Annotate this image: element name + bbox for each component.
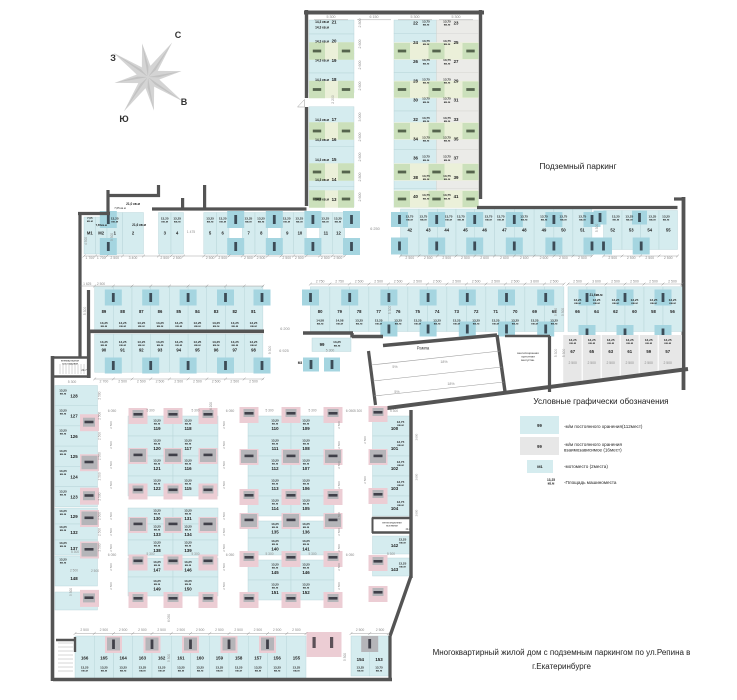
svg-text:28: 28	[413, 78, 418, 83]
svg-text:С: С	[175, 30, 182, 40]
svg-text:кв.м: кв.м	[272, 586, 279, 590]
svg-text:111: 111	[272, 446, 279, 451]
svg-text:кв.м: кв.м	[397, 463, 404, 467]
svg-text:74: 74	[435, 309, 440, 314]
svg-text:2 500: 2 500	[98, 472, 102, 480]
svg-text:2 500: 2 500	[222, 512, 226, 520]
svg-text:кв.м: кв.м	[423, 61, 430, 65]
svg-text:2 500: 2 500	[196, 628, 205, 632]
svg-text:76: 76	[396, 309, 401, 314]
svg-text:18%: 18%	[440, 360, 448, 364]
svg-text:2К-7: 2К-7	[81, 368, 87, 372]
svg-text:2 500: 2 500	[608, 256, 617, 260]
svg-text:5 300: 5 300	[554, 308, 558, 316]
svg-text:1 700: 1 700	[97, 256, 106, 260]
svg-text:кв.м: кв.м	[250, 324, 257, 328]
svg-text:кв.м: кв.м	[569, 341, 576, 345]
svg-text:156: 156	[273, 656, 281, 661]
svg-text:164: 164	[119, 656, 127, 661]
svg-text:1 475: 1 475	[187, 230, 195, 234]
svg-text:кв.м: кв.м	[420, 218, 427, 222]
svg-text:кв.м: кв.м	[250, 343, 257, 347]
svg-text:159: 159	[216, 656, 224, 661]
svg-text:М1: М1	[87, 231, 93, 236]
svg-text:130: 130	[153, 516, 161, 521]
svg-text:59: 59	[646, 349, 651, 354]
svg-text:кв.м: кв.м	[395, 322, 402, 326]
svg-text:кв.м: кв.м	[406, 218, 413, 222]
svg-text:2 500: 2 500	[218, 256, 227, 260]
svg-text:5 300: 5 300	[266, 409, 274, 413]
svg-text:кв.м: кв.м	[272, 442, 279, 446]
svg-text:5 300: 5 300	[326, 349, 335, 353]
svg-text:кв.м: кв.м	[245, 220, 252, 224]
svg-text:71: 71	[493, 309, 498, 314]
svg-text:2 500: 2 500	[119, 628, 128, 632]
svg-text:2 500: 2 500	[118, 379, 127, 383]
svg-text:кв.м: кв.м	[397, 443, 404, 447]
svg-text:кв.м: кв.м	[154, 442, 161, 446]
svg-text:123: 123	[70, 495, 78, 500]
svg-text:кв.м: кв.м	[194, 324, 201, 328]
svg-text:2 500: 2 500	[230, 379, 239, 383]
svg-text:5 300: 5 300	[147, 409, 155, 413]
svg-text:2 500: 2 500	[177, 628, 186, 632]
svg-text:142: 142	[391, 543, 399, 548]
svg-text:83: 83	[214, 309, 219, 314]
svg-text:153: 153	[375, 657, 383, 662]
svg-text:кв.м: кв.м	[185, 563, 192, 567]
svg-text:кв.м: кв.м	[274, 669, 281, 673]
svg-text:2 500: 2 500	[109, 528, 113, 536]
svg-text:кв.м: кв.м	[423, 81, 430, 85]
svg-text:80: 80	[318, 309, 323, 314]
svg-text:116: 116	[184, 466, 192, 471]
svg-text:кв.м: кв.м	[607, 341, 614, 345]
svg-text:2 500: 2 500	[234, 628, 243, 632]
svg-text:кв.м: кв.м	[154, 462, 161, 466]
svg-text:кв.м: кв.м	[120, 669, 127, 673]
svg-text:165: 165	[100, 656, 108, 661]
svg-text:2 600: 2 600	[500, 256, 509, 260]
svg-text:2 500: 2 500	[109, 544, 113, 552]
svg-text:14,3 кв.м: 14,3 кв.м	[315, 78, 330, 82]
svg-text:127: 127	[70, 414, 78, 419]
svg-text:2 500: 2 500	[97, 282, 105, 286]
svg-text:5 300: 5 300	[388, 306, 392, 315]
svg-text:2 500: 2 500	[424, 256, 433, 260]
svg-text:155: 155	[293, 656, 301, 661]
svg-text:кв.м: кв.м	[626, 341, 633, 345]
svg-text:кв.м: кв.м	[60, 492, 67, 496]
svg-text:2 500: 2 500	[587, 361, 596, 365]
svg-text:кв.м: кв.м	[645, 341, 652, 345]
svg-text:кв.м: кв.м	[669, 301, 676, 305]
svg-text:кв.м: кв.м	[376, 669, 383, 673]
svg-text:2 500: 2 500	[206, 256, 215, 260]
svg-text:2 500: 2 500	[254, 628, 263, 632]
svg-text:кв.м: кв.м	[303, 502, 310, 506]
svg-text:14,3 кв.м: 14,3 кв.м	[315, 25, 330, 29]
svg-text:-м/м постоянного хранения: -м/м постоянного хранения	[564, 442, 622, 447]
svg-text:кв.м: кв.м	[154, 582, 161, 586]
svg-text:44: 44	[444, 227, 449, 232]
svg-text:кв.м: кв.м	[60, 391, 67, 395]
svg-text:кв.м: кв.м	[60, 561, 67, 565]
svg-text:кв.м: кв.м	[303, 525, 310, 529]
svg-text:14,3 кв.м: 14,3 кв.м	[315, 178, 330, 182]
svg-text:14,3 кв.м: 14,3 кв.м	[315, 59, 330, 63]
svg-text:2 500: 2 500	[222, 528, 226, 536]
svg-text:кв.м: кв.м	[548, 481, 555, 485]
svg-text:2 600: 2 600	[358, 193, 362, 202]
svg-text:3 400: 3 400	[129, 256, 138, 260]
svg-text:2 500: 2 500	[606, 361, 615, 365]
svg-text:122: 122	[153, 486, 161, 491]
svg-text:160: 160	[196, 656, 204, 661]
svg-text:кв.м: кв.м	[399, 541, 406, 545]
svg-text:кв.м: кв.м	[303, 586, 310, 590]
svg-text:М1: М1	[537, 464, 543, 469]
svg-text:22: 22	[413, 21, 418, 26]
svg-text:кв.м: кв.м	[512, 322, 519, 326]
svg-text:кв.м: кв.м	[111, 220, 118, 224]
svg-text:2 500: 2 500	[413, 280, 422, 284]
svg-text:21,6 кв.м: 21,6 кв.м	[132, 223, 147, 227]
svg-text:2 750: 2 750	[316, 280, 325, 284]
svg-text:18%: 18%	[447, 382, 455, 386]
svg-text:2 500: 2 500	[244, 256, 253, 260]
svg-text:33: 33	[454, 117, 459, 122]
svg-text:65: 65	[589, 349, 594, 354]
svg-text:5 300: 5 300	[411, 15, 420, 19]
svg-text:105: 105	[302, 506, 310, 511]
svg-text:14,3 кв.м: 14,3 кв.м	[315, 198, 330, 202]
svg-text:кв.м: кв.м	[283, 220, 290, 224]
svg-text:10: 10	[298, 231, 303, 236]
svg-text:66: 66	[575, 309, 580, 314]
svg-text:кв.м: кв.м	[453, 322, 460, 326]
svg-text:Многоквартирный жилой дом с по: Многоквартирный жилой дом с подземным па…	[433, 648, 691, 657]
svg-text:1 625: 1 625	[83, 282, 91, 286]
svg-text:кв.м: кв.м	[303, 482, 310, 486]
svg-text:кв.м: кв.м	[161, 220, 168, 224]
svg-text:2 500: 2 500	[337, 421, 341, 429]
svg-text:2 500: 2 500	[222, 563, 226, 571]
svg-text:кв.м: кв.м	[303, 566, 310, 570]
svg-text:2 500: 2 500	[356, 628, 365, 632]
svg-text:кв.м: кв.м	[60, 412, 67, 416]
svg-text:7,65 кв.м: 7,65 кв.м	[114, 206, 126, 210]
svg-text:6 050: 6 050	[226, 553, 235, 557]
svg-text:кв.м: кв.м	[272, 422, 279, 426]
svg-text:2 500: 2 500	[442, 256, 451, 260]
svg-text:кв.м: кв.м	[154, 482, 161, 486]
svg-text:2 500: 2 500	[91, 569, 99, 573]
svg-text:кв.м: кв.м	[423, 177, 430, 181]
svg-text:кв.м: кв.м	[272, 502, 279, 506]
svg-text:кв.м: кв.м	[423, 158, 430, 162]
svg-text:кв.м: кв.м	[216, 669, 223, 673]
svg-text:5 300: 5 300	[192, 552, 200, 556]
svg-text:5 300: 5 300	[83, 307, 87, 316]
svg-text:81: 81	[251, 309, 256, 314]
svg-text:78: 78	[357, 309, 362, 314]
svg-text:5%: 5%	[394, 390, 400, 394]
svg-text:вентиляционная: вентиляционная	[382, 522, 402, 525]
svg-text:3 600: 3 600	[530, 280, 539, 284]
svg-text:5 300: 5 300	[147, 552, 155, 556]
svg-text:кв.м: кв.м	[317, 322, 324, 326]
svg-text:кв.м: кв.м	[185, 544, 192, 548]
svg-text:Подземный паркинг: Подземный паркинг	[539, 161, 616, 171]
svg-text:2 500: 2 500	[98, 391, 102, 399]
svg-text:1 700: 1 700	[85, 256, 94, 260]
svg-text:кв.м: кв.м	[138, 343, 145, 347]
svg-text:146: 146	[302, 570, 310, 575]
svg-text:кв.м: кв.м	[444, 158, 451, 162]
svg-text:2 500: 2 500	[664, 256, 673, 260]
svg-text:кв.м: кв.м	[303, 542, 310, 546]
svg-text:вытяжная: вытяжная	[386, 525, 398, 528]
svg-text:2600: 2600	[415, 433, 419, 440]
svg-text:кв.м: кв.м	[185, 582, 192, 586]
svg-text:6 050: 6 050	[108, 409, 117, 413]
svg-text:Условные графически обозначени: Условные графически обозначения	[533, 397, 668, 406]
svg-text:2 500: 2 500	[511, 280, 520, 284]
svg-text:110: 110	[271, 426, 279, 431]
svg-text:41: 41	[454, 194, 459, 199]
svg-text:вентустан.: вентустан.	[521, 358, 535, 362]
svg-text:2 500: 2 500	[433, 280, 442, 284]
svg-text:14,3 кв.м: 14,3 кв.м	[315, 39, 330, 43]
svg-text:134: 134	[184, 532, 192, 537]
svg-text:27: 27	[454, 59, 459, 64]
svg-text:2 500: 2 500	[374, 280, 383, 284]
svg-text:2 500: 2 500	[559, 256, 568, 260]
svg-text:95: 95	[195, 347, 200, 352]
svg-text:5 300: 5 300	[387, 552, 395, 556]
svg-text:-мотоместо (2места): -мотоместо (2места)	[564, 464, 608, 469]
svg-text:2 600: 2 600	[520, 256, 529, 260]
svg-text:кв.м: кв.м	[423, 139, 430, 143]
svg-text:5 300: 5 300	[71, 550, 79, 554]
svg-text:2 500: 2 500	[70, 569, 78, 573]
svg-text:2 500: 2 500	[337, 441, 341, 449]
svg-text:2 500: 2 500	[363, 476, 367, 484]
svg-text:64: 64	[594, 309, 599, 314]
svg-text:кв.м: кв.м	[322, 220, 329, 224]
svg-text:кв.м: кв.м	[423, 100, 430, 104]
svg-text:кв.м: кв.м	[423, 42, 430, 46]
svg-text:43: 43	[426, 227, 431, 232]
svg-text:19: 19	[332, 58, 337, 63]
svg-text:2 600: 2 600	[358, 153, 362, 162]
svg-text:32: 32	[413, 117, 418, 122]
svg-text:42: 42	[407, 227, 412, 232]
svg-text:154: 154	[357, 657, 365, 662]
svg-text:2 500: 2 500	[337, 461, 341, 469]
svg-text:9 300: 9 300	[268, 346, 272, 355]
svg-text:56: 56	[670, 309, 675, 314]
svg-text:63: 63	[608, 349, 613, 354]
svg-text:2 500: 2 500	[627, 256, 636, 260]
svg-text:2 600: 2 600	[540, 256, 549, 260]
svg-text:кв.м: кв.м	[154, 544, 161, 548]
svg-text:18: 18	[332, 77, 337, 82]
svg-text:2 500: 2 500	[222, 544, 226, 552]
svg-text:99: 99	[537, 423, 542, 428]
svg-text:161: 161	[177, 656, 185, 661]
svg-text:2 500: 2 500	[98, 512, 102, 520]
svg-text:6 050: 6 050	[226, 409, 235, 413]
svg-text:кв.м: кв.м	[194, 343, 201, 347]
svg-text:кв.м: кв.м	[497, 218, 504, 222]
svg-text:86: 86	[158, 309, 163, 314]
svg-text:кв.м: кв.м	[101, 669, 108, 673]
svg-text:2 500: 2 500	[625, 361, 634, 365]
svg-text:кв.м: кв.м	[560, 218, 567, 222]
svg-text:88: 88	[120, 309, 125, 314]
svg-text:129: 129	[70, 514, 78, 519]
svg-text:114: 114	[271, 506, 279, 511]
svg-text:5 300: 5 300	[595, 224, 599, 233]
svg-text:94: 94	[176, 347, 181, 352]
svg-text:кв.м: кв.м	[551, 322, 558, 326]
svg-text:кв.м: кв.м	[336, 322, 343, 326]
svg-text:кв.м: кв.м	[444, 139, 451, 143]
svg-text:2 500: 2 500	[80, 628, 89, 632]
svg-text:2 500: 2 500	[215, 628, 224, 632]
svg-text:67: 67	[570, 349, 575, 354]
svg-text:кв.м: кв.м	[139, 669, 146, 673]
svg-text:кв.м: кв.м	[626, 218, 633, 222]
svg-text:93: 93	[158, 347, 163, 352]
svg-text:128: 128	[70, 394, 78, 399]
svg-text:кв.м: кв.м	[375, 322, 382, 326]
svg-text:5 300: 5 300	[354, 409, 362, 413]
svg-text:кв.м: кв.м	[119, 324, 126, 328]
svg-text:89: 89	[102, 309, 107, 314]
svg-text:6 200: 6 200	[209, 402, 213, 410]
svg-text:кв.м: кв.м	[663, 218, 670, 222]
svg-text:148: 148	[70, 576, 78, 581]
svg-text:135: 135	[271, 530, 279, 535]
svg-text:кв.м: кв.м	[60, 512, 67, 516]
svg-text:5 300: 5 300	[192, 409, 200, 413]
svg-text:45: 45	[463, 227, 468, 232]
svg-text:кв.м: кв.м	[174, 220, 181, 224]
svg-text:2 500: 2 500	[578, 256, 587, 260]
svg-text:3 600: 3 600	[592, 280, 601, 284]
svg-text:132: 132	[70, 530, 78, 535]
svg-text:кв.м: кв.м	[574, 301, 581, 305]
svg-text:2 500: 2 500	[630, 280, 639, 284]
svg-text:14: 14	[332, 177, 337, 182]
svg-text:2 750: 2 750	[335, 280, 344, 284]
svg-text:79: 79	[337, 309, 342, 314]
svg-text:2 500: 2 500	[461, 256, 470, 260]
svg-text:кв.м: кв.м	[272, 566, 279, 570]
svg-text:кв.м: кв.м	[185, 462, 192, 466]
svg-text:69: 69	[532, 309, 537, 314]
svg-text:36: 36	[413, 156, 418, 161]
svg-text:кв.м: кв.м	[60, 472, 67, 476]
svg-text:кв.м: кв.м	[399, 565, 406, 569]
svg-text:109: 109	[302, 426, 310, 431]
svg-text:124: 124	[70, 474, 78, 479]
svg-text:2 500: 2 500	[100, 628, 109, 632]
svg-text:5 300: 5 300	[561, 308, 565, 316]
svg-text:2 500: 2 500	[160, 256, 169, 260]
svg-text:5 300: 5 300	[68, 380, 77, 384]
svg-text:кв.м: кв.м	[235, 669, 242, 673]
svg-text:85: 85	[176, 309, 181, 314]
svg-text:37: 37	[454, 156, 459, 161]
svg-text:2 500: 2 500	[98, 432, 102, 440]
svg-text:2 500: 2 500	[337, 528, 341, 536]
svg-text:3 000: 3 000	[358, 113, 362, 122]
svg-text:2 500: 2 500	[295, 256, 304, 260]
svg-text:25: 25	[454, 40, 459, 45]
svg-text:99: 99	[320, 342, 325, 347]
svg-text:кв.м: кв.м	[541, 218, 548, 222]
svg-text:145: 145	[271, 570, 279, 575]
svg-text:102: 102	[391, 466, 399, 471]
svg-text:149: 149	[153, 587, 161, 592]
svg-text:кв.м: кв.м	[154, 528, 161, 532]
svg-text:6 925: 6 925	[279, 349, 289, 353]
svg-text:кв.м: кв.м	[457, 218, 464, 222]
svg-text:2 500: 2 500	[292, 628, 301, 632]
svg-text:2 500: 2 500	[249, 379, 258, 383]
svg-text:2 600: 2 600	[480, 256, 489, 260]
svg-text:кв.м: кв.м	[397, 503, 404, 507]
svg-text:52: 52	[610, 227, 615, 232]
svg-text:126: 126	[70, 434, 78, 439]
svg-text:кв.м: кв.м	[178, 669, 185, 673]
svg-text:113: 113	[271, 486, 279, 491]
svg-text:70: 70	[513, 309, 518, 314]
svg-text:кв.м: кв.м	[157, 324, 164, 328]
svg-text:17: 17	[332, 117, 337, 122]
svg-text:кв.м: кв.м	[445, 218, 452, 222]
svg-text:кв.м: кв.м	[444, 61, 451, 65]
svg-text:кв.м: кв.м	[485, 218, 492, 222]
svg-text:120: 120	[153, 446, 161, 451]
svg-text:2 500: 2 500	[110, 256, 119, 260]
svg-text:кв.м: кв.м	[213, 343, 220, 347]
svg-text:152: 152	[302, 590, 310, 595]
svg-text:112: 112	[271, 466, 279, 471]
svg-text:кв.м: кв.м	[397, 423, 404, 427]
svg-text:39: 39	[454, 175, 459, 180]
svg-text:35: 35	[454, 136, 459, 141]
svg-text:2 500: 2 500	[337, 544, 341, 552]
svg-text:хоз.кладовая: хоз.кладовая	[62, 362, 78, 365]
svg-text:2 500: 2 500	[405, 256, 414, 260]
svg-text:12: 12	[336, 231, 341, 236]
svg-text:кв.м: кв.м	[60, 528, 67, 532]
svg-text:г.Екатеринбурге: г.Екатеринбурге	[532, 662, 591, 671]
svg-text:104: 104	[391, 506, 399, 511]
svg-text:2 500: 2 500	[98, 528, 102, 536]
svg-text:82: 82	[232, 309, 237, 314]
svg-text:143: 143	[391, 567, 399, 572]
svg-text:73: 73	[454, 309, 459, 314]
svg-text:2 500: 2 500	[337, 512, 341, 520]
svg-text:взаимозависимое (16мест): взаимозависимое (16мест)	[564, 448, 622, 453]
